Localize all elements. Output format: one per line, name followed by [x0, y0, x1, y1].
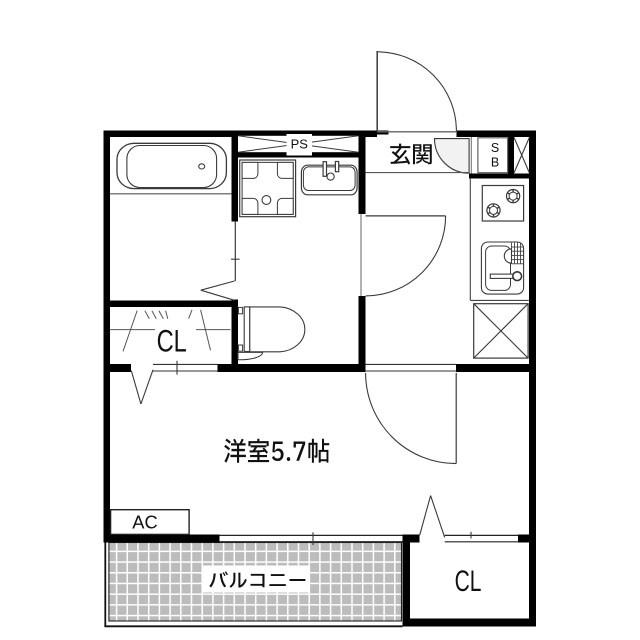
svg-text:S: S [491, 141, 499, 155]
svg-text:AC: AC [132, 511, 157, 532]
svg-text:CL: CL [455, 566, 482, 598]
svg-text:PS: PS [291, 136, 309, 151]
svg-text:CL: CL [157, 323, 187, 358]
svg-text:B: B [491, 155, 499, 169]
